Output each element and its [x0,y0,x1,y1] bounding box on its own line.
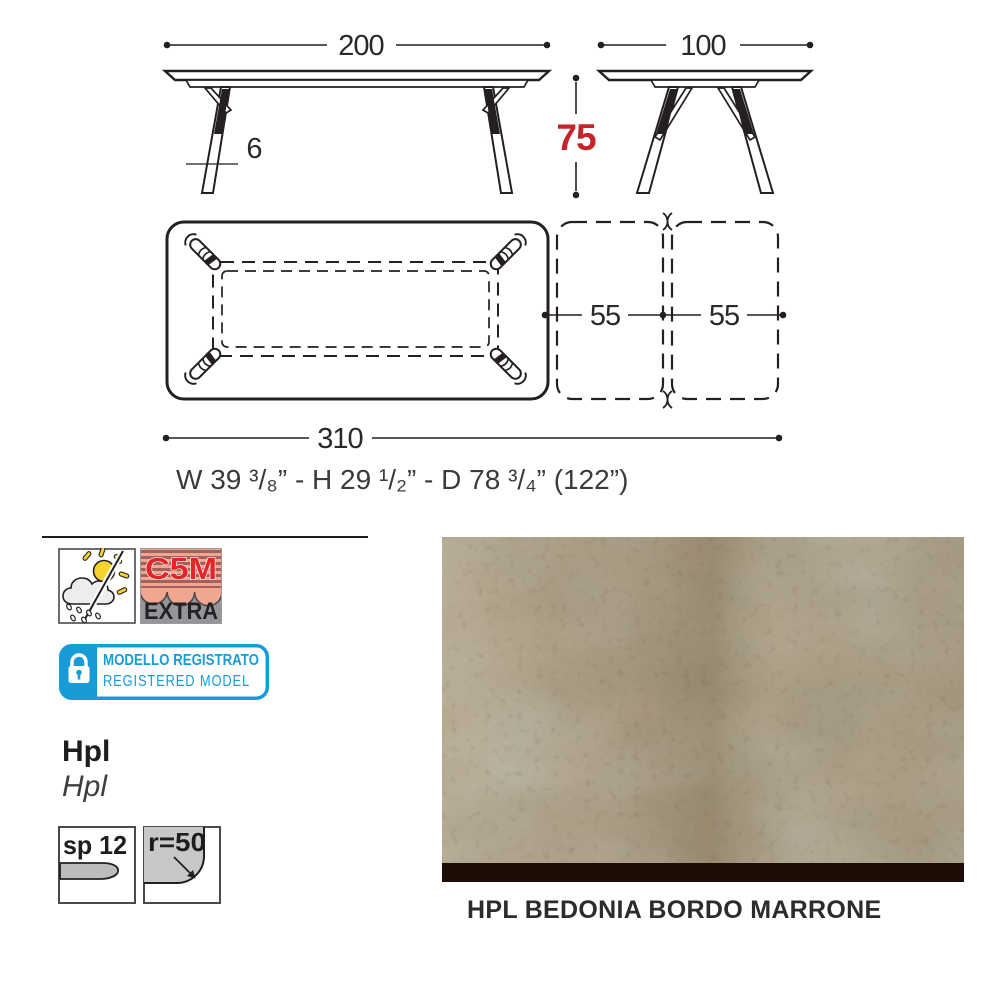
material-name-italic: Hpl [62,770,107,804]
dim-depth: 100 [680,30,725,62]
extra-label: EXTRA [144,598,218,624]
dim-extension-2: 55 [709,300,739,332]
badge-line1: MODELLO REGISTRATO [103,652,259,669]
dim-length-closed: 200 [338,30,383,62]
edge-profile-shape [60,863,118,879]
end-view: 100 [598,30,814,193]
corner-radius-icon: r=50 [143,826,221,904]
registered-model-badge: MODELLO REGISTRATO REGISTERED MODEL [59,644,269,700]
thickness-sp12-icon: sp 12 [58,826,136,904]
imperial-dimensions: W 39 ³/₈” - H 29 ¹/₂” - D 78 ³/₄” (122”) [176,464,628,496]
material-swatch [442,537,964,882]
dim-top-thickness: 6 [246,133,261,165]
front-view: 200 6 [164,30,551,193]
technical-drawing: 200 6 75 [0,0,1000,520]
finish-caption: HPL BEDONIA BORDO MARRONE [467,896,881,925]
material-name: Hpl [62,735,110,769]
dim-height: 75 [556,117,596,158]
dim-extension-1: 55 [590,300,620,332]
section-divider [42,536,368,538]
r50-label: r=50 [148,827,206,857]
c5m-label: C5M [145,551,217,586]
height-dim: 75 [556,75,596,199]
sp12-label: sp 12 [63,830,127,860]
swatch-edge-bar [442,863,964,882]
plan-view: 55 55 310 [163,213,787,455]
c5m-extra-corrosion-icon: C5M EXTRA [140,548,222,624]
spec-sheet: 200 6 75 [0,0,1000,1000]
sun-rain-outdoor-icon [58,548,136,624]
badge-line2: REGISTERED MODEL [103,673,250,690]
dim-length-open: 310 [317,423,362,455]
